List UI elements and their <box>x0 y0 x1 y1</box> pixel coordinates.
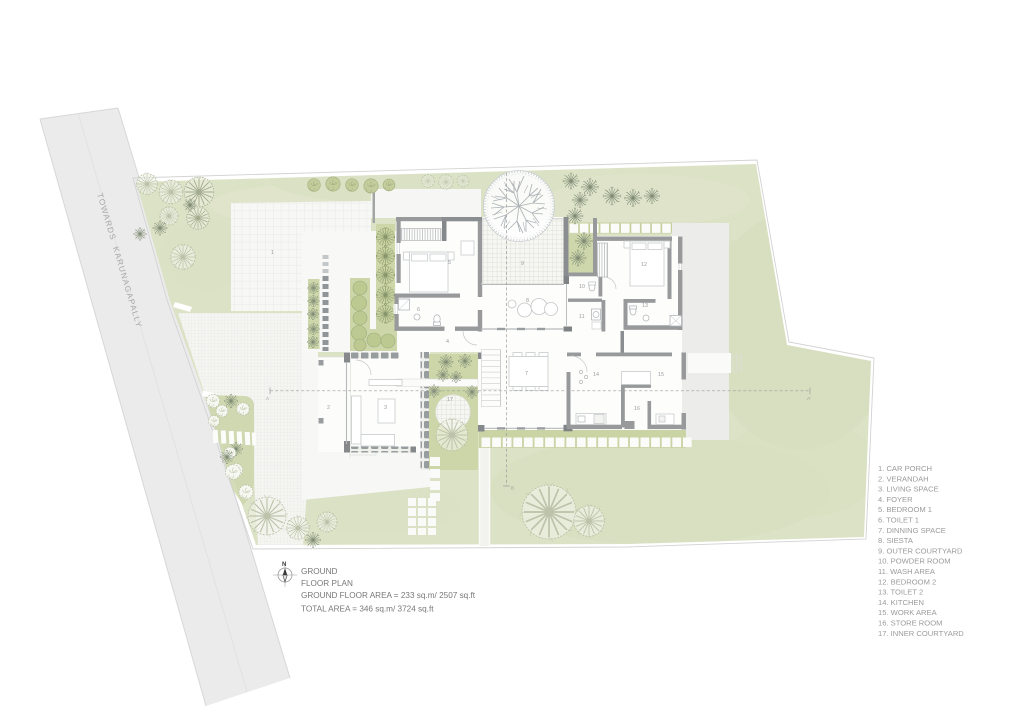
svg-text:8. SIESTA: 8. SIESTA <box>878 536 914 545</box>
svg-text:4. FOYER: 4. FOYER <box>878 495 913 504</box>
svg-text:7: 7 <box>525 371 528 377</box>
svg-text:TOTAL AREA = 346 sq.m/ 3724 sq: TOTAL AREA = 346 sq.m/ 3724 sq.ft <box>301 605 434 614</box>
svg-text:6: 6 <box>417 307 420 313</box>
svg-text:10: 10 <box>579 284 585 290</box>
svg-text:1. CAR PORCH: 1. CAR PORCH <box>878 464 932 473</box>
svg-text:2. VERANDAH: 2. VERANDAH <box>878 474 929 483</box>
svg-text:9: 9 <box>521 261 524 267</box>
svg-text:2: 2 <box>327 405 330 411</box>
svg-text:GROUND FLOOR AREA = 233 sq.m/: GROUND FLOOR AREA = 233 sq.m/ 2507 sq.ft <box>301 591 476 600</box>
svg-text:15. WORK AREA: 15. WORK AREA <box>878 608 938 617</box>
svg-text:5: 5 <box>448 260 451 266</box>
svg-text:6. TOILET 1: 6. TOILET 1 <box>878 516 919 525</box>
svg-text:14: 14 <box>593 372 599 378</box>
svg-text:12. BEDROOM 2: 12. BEDROOM 2 <box>878 577 936 586</box>
svg-text:B: B <box>511 486 514 491</box>
svg-text:14. KITCHEN: 14. KITCHEN <box>878 598 924 607</box>
svg-text:11: 11 <box>579 314 585 320</box>
svg-text:13: 13 <box>642 303 648 309</box>
svg-text:FLOOR PLAN: FLOOR PLAN <box>301 579 353 588</box>
svg-text:8: 8 <box>526 298 529 304</box>
svg-text:A': A' <box>807 396 811 401</box>
svg-text:15: 15 <box>658 372 664 378</box>
svg-text:10. POWDER ROOM: 10. POWDER ROOM <box>878 557 951 566</box>
svg-text:5. BEDROOM 1: 5. BEDROOM 1 <box>878 505 932 514</box>
svg-text:9. OUTER COURTYARD: 9. OUTER COURTYARD <box>878 546 963 555</box>
svg-text:GROUND: GROUND <box>301 567 337 576</box>
svg-text:3. LIVING SPACE: 3. LIVING SPACE <box>878 485 939 494</box>
svg-text:16: 16 <box>634 406 640 412</box>
svg-text:17: 17 <box>447 397 453 403</box>
svg-text:12: 12 <box>641 262 647 268</box>
svg-text:N: N <box>282 562 286 568</box>
svg-text:7. DINNING SPACE: 7. DINNING SPACE <box>878 526 946 535</box>
svg-text:13. TOILET 2: 13. TOILET 2 <box>878 588 923 597</box>
svg-text:3: 3 <box>384 405 387 411</box>
svg-text:4: 4 <box>446 339 449 345</box>
svg-text:17. INNER COURTYARD: 17. INNER COURTYARD <box>878 629 964 638</box>
svg-text:16. STORE ROOM: 16. STORE ROOM <box>878 619 942 628</box>
svg-text:1: 1 <box>271 250 274 256</box>
svg-text:11. WASH AREA: 11. WASH AREA <box>878 567 936 576</box>
